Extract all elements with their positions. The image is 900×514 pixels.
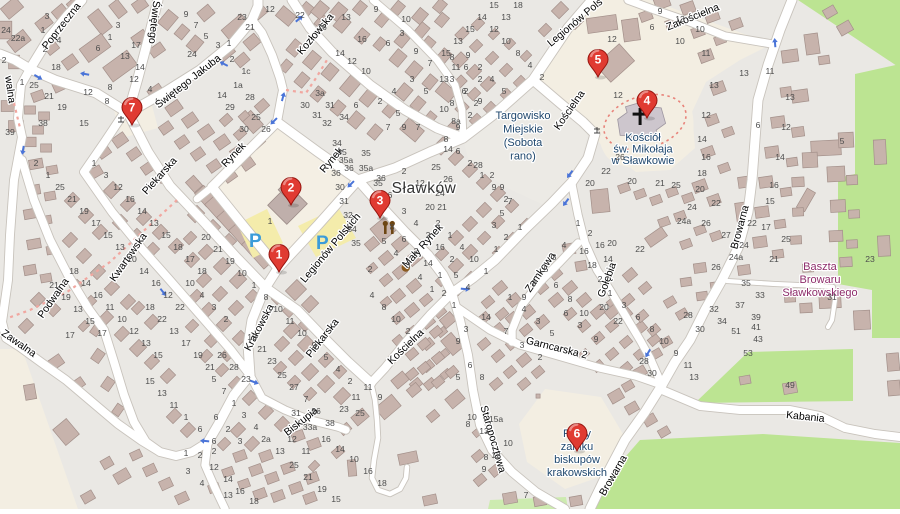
svg-text:6: 6 bbox=[96, 43, 101, 53]
svg-text:30: 30 bbox=[695, 324, 705, 334]
svg-text:13: 13 bbox=[439, 74, 449, 84]
svg-text:2: 2 bbox=[368, 264, 373, 274]
svg-text:20: 20 bbox=[425, 202, 435, 212]
svg-text:5: 5 bbox=[544, 264, 549, 274]
svg-text:14: 14 bbox=[335, 48, 345, 58]
svg-text:28: 28 bbox=[473, 160, 483, 170]
svg-text:11: 11 bbox=[302, 446, 311, 456]
svg-text:1: 1 bbox=[430, 284, 435, 294]
svg-text:1: 1 bbox=[448, 230, 453, 240]
svg-text:2: 2 bbox=[212, 446, 217, 456]
svg-text:1: 1 bbox=[452, 300, 457, 310]
svg-text:2: 2 bbox=[34, 158, 39, 168]
svg-text:39: 39 bbox=[751, 312, 761, 322]
svg-text:krakowskich: krakowskich bbox=[547, 467, 607, 479]
svg-text:36: 36 bbox=[331, 168, 341, 178]
svg-text:11: 11 bbox=[106, 302, 115, 312]
svg-text:4: 4 bbox=[57, 35, 62, 45]
svg-text:4: 4 bbox=[522, 304, 527, 314]
svg-text:1: 1 bbox=[480, 170, 485, 180]
svg-text:7: 7 bbox=[222, 386, 227, 396]
svg-text:2: 2 bbox=[43, 44, 48, 54]
svg-text:3: 3 bbox=[536, 316, 541, 326]
svg-text:8: 8 bbox=[516, 48, 521, 58]
svg-text:14: 14 bbox=[81, 278, 91, 288]
svg-text:18: 18 bbox=[145, 302, 155, 312]
svg-text:12: 12 bbox=[113, 182, 123, 192]
svg-text:21: 21 bbox=[437, 202, 447, 212]
svg-text:30: 30 bbox=[647, 368, 657, 378]
svg-text:9: 9 bbox=[312, 340, 317, 350]
svg-text:2: 2 bbox=[468, 110, 473, 120]
svg-text:15a: 15a bbox=[489, 414, 504, 424]
svg-text:25: 25 bbox=[781, 234, 791, 244]
svg-text:2: 2 bbox=[478, 62, 483, 72]
svg-text:13: 13 bbox=[275, 446, 285, 456]
svg-text:23: 23 bbox=[865, 254, 875, 264]
svg-text:13: 13 bbox=[341, 12, 351, 22]
svg-text:8: 8 bbox=[484, 452, 489, 462]
svg-text:26: 26 bbox=[615, 152, 625, 162]
svg-text:5: 5 bbox=[456, 372, 461, 382]
svg-text:16: 16 bbox=[125, 194, 135, 204]
svg-text:7: 7 bbox=[416, 122, 421, 132]
svg-text:19: 19 bbox=[225, 256, 235, 266]
svg-text:25: 25 bbox=[277, 370, 287, 380]
svg-text:2: 2 bbox=[436, 218, 441, 228]
svg-text:3: 3 bbox=[212, 302, 217, 312]
svg-text:4: 4 bbox=[490, 74, 495, 84]
svg-text:biskupów: biskupów bbox=[554, 454, 600, 466]
svg-text:12: 12 bbox=[613, 90, 623, 100]
svg-text:27: 27 bbox=[289, 382, 299, 392]
svg-text:2: 2 bbox=[598, 274, 603, 284]
svg-text:4: 4 bbox=[200, 478, 205, 488]
svg-text:13: 13 bbox=[453, 36, 463, 46]
svg-text:2a: 2a bbox=[261, 434, 271, 444]
svg-text:6: 6 bbox=[354, 100, 359, 110]
svg-text:4: 4 bbox=[414, 218, 419, 228]
svg-text:2: 2 bbox=[406, 326, 411, 336]
svg-text:20: 20 bbox=[607, 238, 617, 248]
svg-text:21: 21 bbox=[303, 472, 313, 482]
svg-text:3: 3 bbox=[216, 40, 221, 50]
svg-text:3a: 3a bbox=[315, 88, 325, 98]
svg-text:9: 9 bbox=[184, 9, 189, 19]
svg-text:13: 13 bbox=[709, 80, 719, 90]
svg-text:15: 15 bbox=[79, 118, 89, 128]
svg-text:19: 19 bbox=[79, 206, 89, 216]
svg-text:3: 3 bbox=[242, 410, 247, 420]
svg-text:10: 10 bbox=[695, 24, 705, 34]
svg-text:14: 14 bbox=[697, 134, 707, 144]
svg-text:20: 20 bbox=[695, 184, 705, 194]
svg-text:16: 16 bbox=[357, 34, 367, 44]
svg-text:15: 15 bbox=[145, 376, 155, 386]
svg-text:12: 12 bbox=[491, 450, 501, 460]
svg-text:12: 12 bbox=[701, 110, 711, 120]
svg-text:5: 5 bbox=[382, 236, 387, 246]
svg-text:9: 9 bbox=[492, 182, 497, 192]
svg-text:13: 13 bbox=[479, 426, 489, 436]
svg-text:9: 9 bbox=[456, 336, 461, 346]
svg-text:26: 26 bbox=[711, 262, 721, 272]
svg-text:24: 24 bbox=[739, 240, 749, 250]
svg-text:5: 5 bbox=[840, 136, 845, 146]
svg-text:5: 5 bbox=[550, 328, 555, 338]
svg-text:13: 13 bbox=[169, 326, 179, 336]
svg-text:2: 2 bbox=[414, 246, 419, 256]
svg-text:5: 5 bbox=[204, 31, 209, 41]
svg-text:7: 7 bbox=[524, 490, 529, 500]
svg-text:19: 19 bbox=[57, 102, 67, 112]
svg-text:3: 3 bbox=[406, 260, 411, 270]
svg-text:19: 19 bbox=[193, 350, 203, 360]
svg-text:14: 14 bbox=[137, 206, 147, 216]
svg-text:26: 26 bbox=[217, 350, 227, 360]
svg-text:23: 23 bbox=[241, 374, 251, 384]
svg-text:12: 12 bbox=[347, 56, 357, 66]
svg-text:8: 8 bbox=[264, 292, 269, 302]
svg-text:1: 1 bbox=[484, 266, 489, 276]
svg-text:4: 4 bbox=[418, 272, 423, 282]
svg-text:6: 6 bbox=[462, 86, 467, 96]
svg-text:1: 1 bbox=[438, 270, 443, 280]
svg-text:8: 8 bbox=[444, 134, 449, 144]
svg-text:14: 14 bbox=[217, 90, 227, 100]
svg-text:1: 1 bbox=[232, 398, 237, 408]
svg-text:33: 33 bbox=[755, 290, 765, 300]
svg-text:28: 28 bbox=[229, 362, 239, 372]
svg-text:20: 20 bbox=[585, 178, 595, 188]
svg-text:7: 7 bbox=[194, 20, 199, 30]
svg-text:Kościół: Kościół bbox=[625, 132, 661, 144]
svg-text:26: 26 bbox=[443, 174, 453, 184]
svg-text:23: 23 bbox=[339, 404, 349, 414]
svg-text:P: P bbox=[249, 231, 262, 252]
svg-text:18: 18 bbox=[697, 168, 707, 178]
svg-text:9: 9 bbox=[658, 6, 663, 16]
svg-text:10: 10 bbox=[127, 254, 137, 264]
svg-text:25: 25 bbox=[251, 112, 261, 122]
svg-text:18: 18 bbox=[513, 0, 523, 10]
svg-text:19: 19 bbox=[247, 332, 257, 342]
svg-text:7: 7 bbox=[532, 278, 537, 288]
svg-text:21: 21 bbox=[655, 178, 665, 188]
svg-text:10: 10 bbox=[503, 438, 513, 448]
svg-text:1: 1 bbox=[608, 288, 613, 298]
svg-text:2: 2 bbox=[504, 194, 509, 204]
svg-text:36: 36 bbox=[311, 406, 321, 416]
svg-text:7: 7 bbox=[428, 58, 433, 68]
svg-text:2: 2 bbox=[490, 170, 495, 180]
svg-text:5: 5 bbox=[396, 108, 401, 118]
svg-text:12: 12 bbox=[209, 462, 219, 472]
svg-text:2: 2 bbox=[230, 54, 235, 64]
svg-text:5: 5 bbox=[424, 86, 429, 96]
svg-text:22: 22 bbox=[295, 10, 305, 20]
svg-text:2: 2 bbox=[226, 424, 231, 434]
svg-text:4: 4 bbox=[336, 364, 341, 374]
svg-text:3: 3 bbox=[238, 436, 243, 446]
svg-text:34: 34 bbox=[717, 316, 727, 326]
svg-text:4: 4 bbox=[466, 282, 471, 292]
svg-text:18: 18 bbox=[51, 62, 61, 72]
svg-text:4: 4 bbox=[392, 86, 397, 96]
svg-text:15: 15 bbox=[441, 48, 451, 58]
svg-text:14: 14 bbox=[481, 312, 491, 322]
svg-text:6: 6 bbox=[402, 234, 407, 244]
svg-text:16: 16 bbox=[317, 22, 327, 32]
svg-text:51: 51 bbox=[731, 326, 741, 336]
svg-text:37: 37 bbox=[735, 300, 745, 310]
svg-text:1: 1 bbox=[184, 412, 189, 422]
svg-text:11: 11 bbox=[684, 360, 693, 370]
svg-text:22: 22 bbox=[635, 244, 645, 254]
svg-text:20: 20 bbox=[599, 302, 609, 312]
svg-text:22: 22 bbox=[747, 218, 757, 228]
svg-text:8: 8 bbox=[480, 372, 485, 382]
svg-text:17: 17 bbox=[185, 254, 195, 264]
svg-text:20: 20 bbox=[627, 176, 637, 186]
svg-text:1: 1 bbox=[46, 170, 51, 180]
svg-text:9: 9 bbox=[674, 348, 679, 358]
svg-text:Targowisko: Targowisko bbox=[495, 110, 550, 122]
svg-text:1: 1 bbox=[268, 216, 273, 226]
svg-text:10: 10 bbox=[659, 336, 669, 346]
svg-text:3: 3 bbox=[410, 74, 415, 84]
svg-text:15: 15 bbox=[85, 316, 95, 326]
svg-text:38: 38 bbox=[38, 118, 48, 128]
svg-text:Miejskie: Miejskie bbox=[503, 124, 543, 136]
svg-text:5: 5 bbox=[212, 374, 217, 384]
svg-text:2: 2 bbox=[348, 376, 353, 386]
svg-text:8: 8 bbox=[650, 324, 655, 334]
svg-text:16: 16 bbox=[321, 434, 331, 444]
svg-text:22a: 22a bbox=[11, 33, 26, 43]
svg-text:4: 4 bbox=[370, 290, 375, 300]
svg-text:2: 2 bbox=[504, 232, 509, 242]
svg-text:10: 10 bbox=[469, 254, 479, 264]
svg-text:8: 8 bbox=[382, 302, 387, 312]
svg-text:4: 4 bbox=[148, 84, 153, 94]
svg-text:2: 2 bbox=[288, 181, 295, 195]
svg-text:25: 25 bbox=[29, 80, 39, 90]
svg-text:24: 24 bbox=[435, 188, 445, 198]
svg-text:12: 12 bbox=[129, 74, 139, 84]
svg-text:8: 8 bbox=[390, 222, 395, 232]
svg-text:13: 13 bbox=[120, 51, 130, 61]
svg-text:22: 22 bbox=[601, 166, 611, 176]
svg-text:2: 2 bbox=[588, 228, 593, 238]
svg-text:3: 3 bbox=[377, 194, 384, 208]
svg-text:12: 12 bbox=[287, 434, 297, 444]
svg-text:10: 10 bbox=[579, 308, 589, 318]
svg-text:15: 15 bbox=[161, 230, 171, 240]
svg-text:34: 34 bbox=[339, 112, 349, 122]
svg-text:9: 9 bbox=[482, 464, 487, 474]
svg-text:31: 31 bbox=[827, 292, 837, 302]
svg-text:21: 21 bbox=[245, 22, 255, 32]
svg-text:31: 31 bbox=[312, 110, 322, 120]
svg-text:16: 16 bbox=[93, 290, 103, 300]
svg-text:6: 6 bbox=[214, 412, 219, 422]
svg-text:1: 1 bbox=[494, 244, 499, 254]
svg-text:35: 35 bbox=[351, 238, 361, 248]
svg-text:Browaru: Browaru bbox=[800, 274, 841, 286]
svg-text:Sławkowskiego: Sławkowskiego bbox=[782, 287, 857, 299]
svg-text:9: 9 bbox=[414, 46, 419, 56]
svg-text:Baszta: Baszta bbox=[803, 261, 838, 273]
svg-text:10: 10 bbox=[675, 36, 685, 46]
svg-text:8: 8 bbox=[450, 98, 455, 108]
svg-text:16: 16 bbox=[235, 486, 245, 496]
svg-text:10: 10 bbox=[501, 36, 511, 46]
svg-text:3: 3 bbox=[552, 252, 557, 262]
svg-text:12: 12 bbox=[781, 122, 791, 132]
svg-text:13: 13 bbox=[115, 242, 125, 252]
svg-text:16: 16 bbox=[579, 246, 589, 256]
svg-text:4: 4 bbox=[254, 422, 259, 432]
svg-text:10: 10 bbox=[117, 314, 127, 324]
svg-text:13: 13 bbox=[223, 490, 233, 500]
svg-text:10: 10 bbox=[391, 314, 401, 324]
svg-text:4: 4 bbox=[562, 240, 567, 250]
svg-text:22: 22 bbox=[613, 316, 623, 326]
svg-text:21: 21 bbox=[67, 194, 77, 204]
svg-text:2: 2 bbox=[450, 254, 455, 264]
svg-text:10: 10 bbox=[237, 268, 247, 278]
svg-text:8: 8 bbox=[105, 96, 110, 106]
svg-text:38: 38 bbox=[325, 418, 335, 428]
svg-text:2: 2 bbox=[478, 74, 483, 84]
svg-text:12: 12 bbox=[415, 178, 425, 188]
svg-text:9: 9 bbox=[466, 50, 471, 60]
svg-text:16: 16 bbox=[435, 242, 445, 252]
svg-text:21: 21 bbox=[205, 362, 215, 372]
svg-text:16: 16 bbox=[151, 278, 161, 288]
svg-text:6: 6 bbox=[574, 427, 581, 441]
svg-text:17: 17 bbox=[65, 330, 75, 340]
svg-text:10: 10 bbox=[401, 14, 411, 24]
svg-text:2: 2 bbox=[468, 158, 473, 168]
svg-text:9: 9 bbox=[500, 182, 505, 192]
svg-text:3: 3 bbox=[464, 324, 469, 334]
svg-text:13: 13 bbox=[149, 218, 159, 228]
svg-text:6: 6 bbox=[564, 308, 569, 318]
svg-text:1: 1 bbox=[508, 292, 513, 302]
svg-text:10: 10 bbox=[185, 278, 195, 288]
svg-text:11: 11 bbox=[170, 400, 179, 410]
svg-text:19: 19 bbox=[61, 292, 71, 302]
svg-text:3: 3 bbox=[622, 300, 627, 310]
svg-text:2: 2 bbox=[198, 450, 203, 460]
svg-text:6: 6 bbox=[756, 120, 761, 130]
svg-text:13: 13 bbox=[73, 304, 83, 314]
svg-text:11: 11 bbox=[352, 392, 361, 402]
svg-text:6: 6 bbox=[554, 280, 559, 290]
svg-text:5: 5 bbox=[454, 270, 459, 280]
svg-text:21: 21 bbox=[213, 244, 223, 254]
svg-text:21: 21 bbox=[44, 91, 54, 101]
svg-text:24a: 24a bbox=[729, 252, 744, 262]
svg-text:7: 7 bbox=[386, 122, 391, 132]
svg-text:1: 1 bbox=[276, 248, 283, 262]
svg-text:2: 2 bbox=[540, 72, 545, 82]
svg-text:19: 19 bbox=[317, 484, 327, 494]
svg-text:14: 14 bbox=[335, 444, 345, 454]
svg-text:2: 2 bbox=[2, 55, 7, 65]
svg-text:11: 11 bbox=[286, 316, 295, 326]
svg-text:23: 23 bbox=[267, 356, 277, 366]
svg-text:18: 18 bbox=[69, 266, 79, 276]
svg-text:14: 14 bbox=[603, 254, 613, 264]
svg-text:2: 2 bbox=[402, 166, 407, 176]
svg-text:5: 5 bbox=[595, 53, 602, 67]
svg-text:12: 12 bbox=[163, 290, 173, 300]
svg-text:4: 4 bbox=[460, 242, 465, 252]
svg-text:9: 9 bbox=[402, 122, 407, 132]
svg-text:17: 17 bbox=[91, 218, 101, 228]
svg-text:24: 24 bbox=[187, 49, 197, 59]
svg-text:15: 15 bbox=[103, 230, 113, 240]
svg-text:32: 32 bbox=[343, 210, 353, 220]
svg-text:25: 25 bbox=[431, 162, 441, 172]
svg-text:18: 18 bbox=[249, 496, 259, 506]
svg-text:9: 9 bbox=[456, 122, 461, 132]
svg-text:30: 30 bbox=[335, 182, 345, 192]
svg-text:10: 10 bbox=[349, 454, 359, 464]
svg-text:7: 7 bbox=[129, 101, 136, 115]
svg-text:25: 25 bbox=[355, 408, 365, 418]
svg-text:2: 2 bbox=[224, 314, 229, 324]
svg-text:16: 16 bbox=[363, 466, 373, 476]
svg-text:25: 25 bbox=[289, 460, 299, 470]
svg-text:29: 29 bbox=[225, 102, 235, 112]
svg-text:7: 7 bbox=[304, 394, 309, 404]
svg-text:8: 8 bbox=[466, 419, 471, 429]
svg-text:6: 6 bbox=[464, 62, 469, 72]
svg-text:3: 3 bbox=[492, 220, 497, 230]
svg-text:16: 16 bbox=[769, 180, 779, 190]
svg-text:9: 9 bbox=[522, 292, 527, 302]
svg-text:1: 1 bbox=[252, 280, 257, 290]
svg-text:43: 43 bbox=[753, 334, 763, 344]
svg-text:9: 9 bbox=[378, 392, 383, 402]
svg-text:10: 10 bbox=[439, 104, 449, 114]
svg-text:7: 7 bbox=[504, 326, 509, 336]
svg-text:39: 39 bbox=[5, 127, 15, 137]
svg-text:4: 4 bbox=[200, 290, 205, 300]
svg-text:15: 15 bbox=[331, 494, 341, 504]
svg-text:26: 26 bbox=[261, 124, 271, 134]
svg-text:11: 11 bbox=[766, 66, 775, 76]
svg-text:11: 11 bbox=[452, 62, 461, 72]
svg-text:15: 15 bbox=[465, 24, 475, 34]
svg-text:14: 14 bbox=[443, 144, 453, 154]
svg-text:rano): rano) bbox=[510, 151, 536, 163]
svg-text:18: 18 bbox=[587, 260, 597, 270]
svg-text:10: 10 bbox=[297, 328, 307, 338]
svg-text:1: 1 bbox=[20, 77, 25, 87]
svg-text:8: 8 bbox=[568, 294, 573, 304]
svg-text:1: 1 bbox=[92, 158, 97, 168]
svg-text:3: 3 bbox=[116, 20, 121, 30]
svg-text:13: 13 bbox=[157, 388, 167, 398]
svg-text:32: 32 bbox=[709, 304, 719, 314]
svg-text:1: 1 bbox=[518, 222, 523, 232]
svg-text:25: 25 bbox=[671, 180, 681, 190]
